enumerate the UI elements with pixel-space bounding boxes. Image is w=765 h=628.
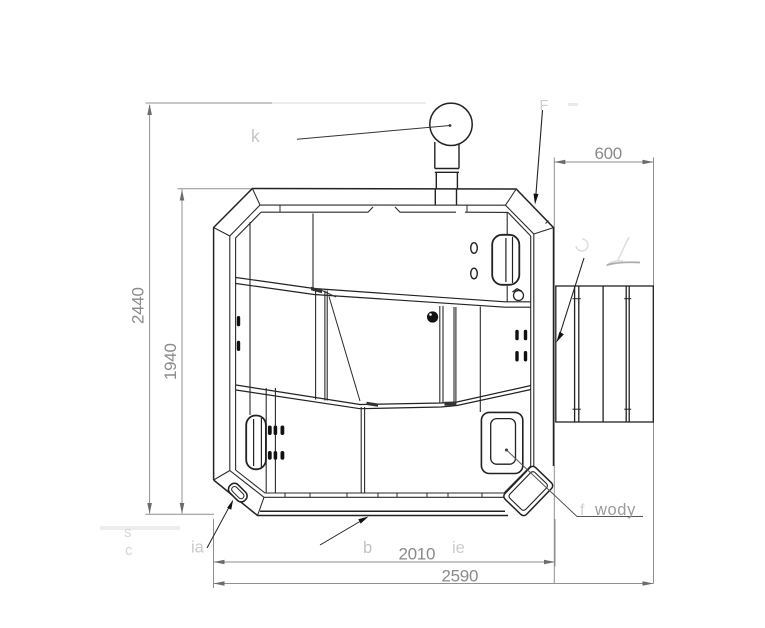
- svg-text:wody: wody: [594, 501, 636, 519]
- svg-text:k: k: [251, 126, 260, 146]
- svg-text:f: f: [580, 502, 585, 519]
- svg-text:b: b: [363, 539, 372, 557]
- svg-text:2440: 2440: [129, 287, 148, 324]
- svg-text:2010: 2010: [399, 545, 436, 564]
- svg-text:1940: 1940: [161, 343, 180, 380]
- svg-text:c: c: [125, 542, 133, 559]
- svg-text:F: F: [540, 98, 549, 114]
- svg-text:ia: ia: [191, 539, 205, 557]
- svg-text:600: 600: [595, 144, 622, 163]
- svg-text:2590: 2590: [442, 567, 479, 586]
- svg-text:s: s: [124, 524, 132, 541]
- svg-text:ie: ie: [452, 539, 465, 557]
